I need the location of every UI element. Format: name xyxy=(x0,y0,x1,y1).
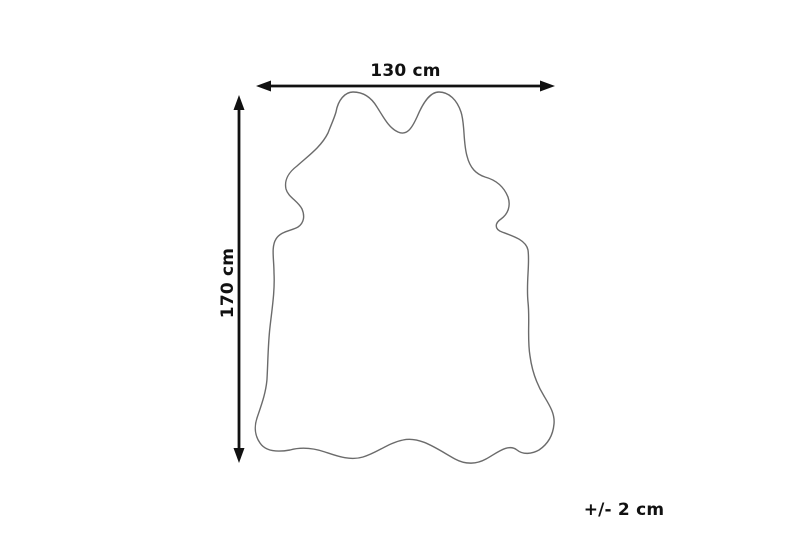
height-dimension-label: 170 cm xyxy=(218,212,238,354)
arrow-right-head xyxy=(540,81,555,92)
width-dimension-arrow xyxy=(256,81,555,92)
cowhide-outline xyxy=(255,92,554,463)
width-dimension-label: 130 cm xyxy=(258,61,553,81)
arrow-left-head xyxy=(256,81,271,92)
tolerance-label: +/- 2 cm xyxy=(554,500,694,520)
arrow-down-head xyxy=(234,448,245,463)
arrow-up-head xyxy=(234,95,245,110)
dimension-diagram: 130 cm 170 cm +/- 2 cm xyxy=(0,0,800,533)
